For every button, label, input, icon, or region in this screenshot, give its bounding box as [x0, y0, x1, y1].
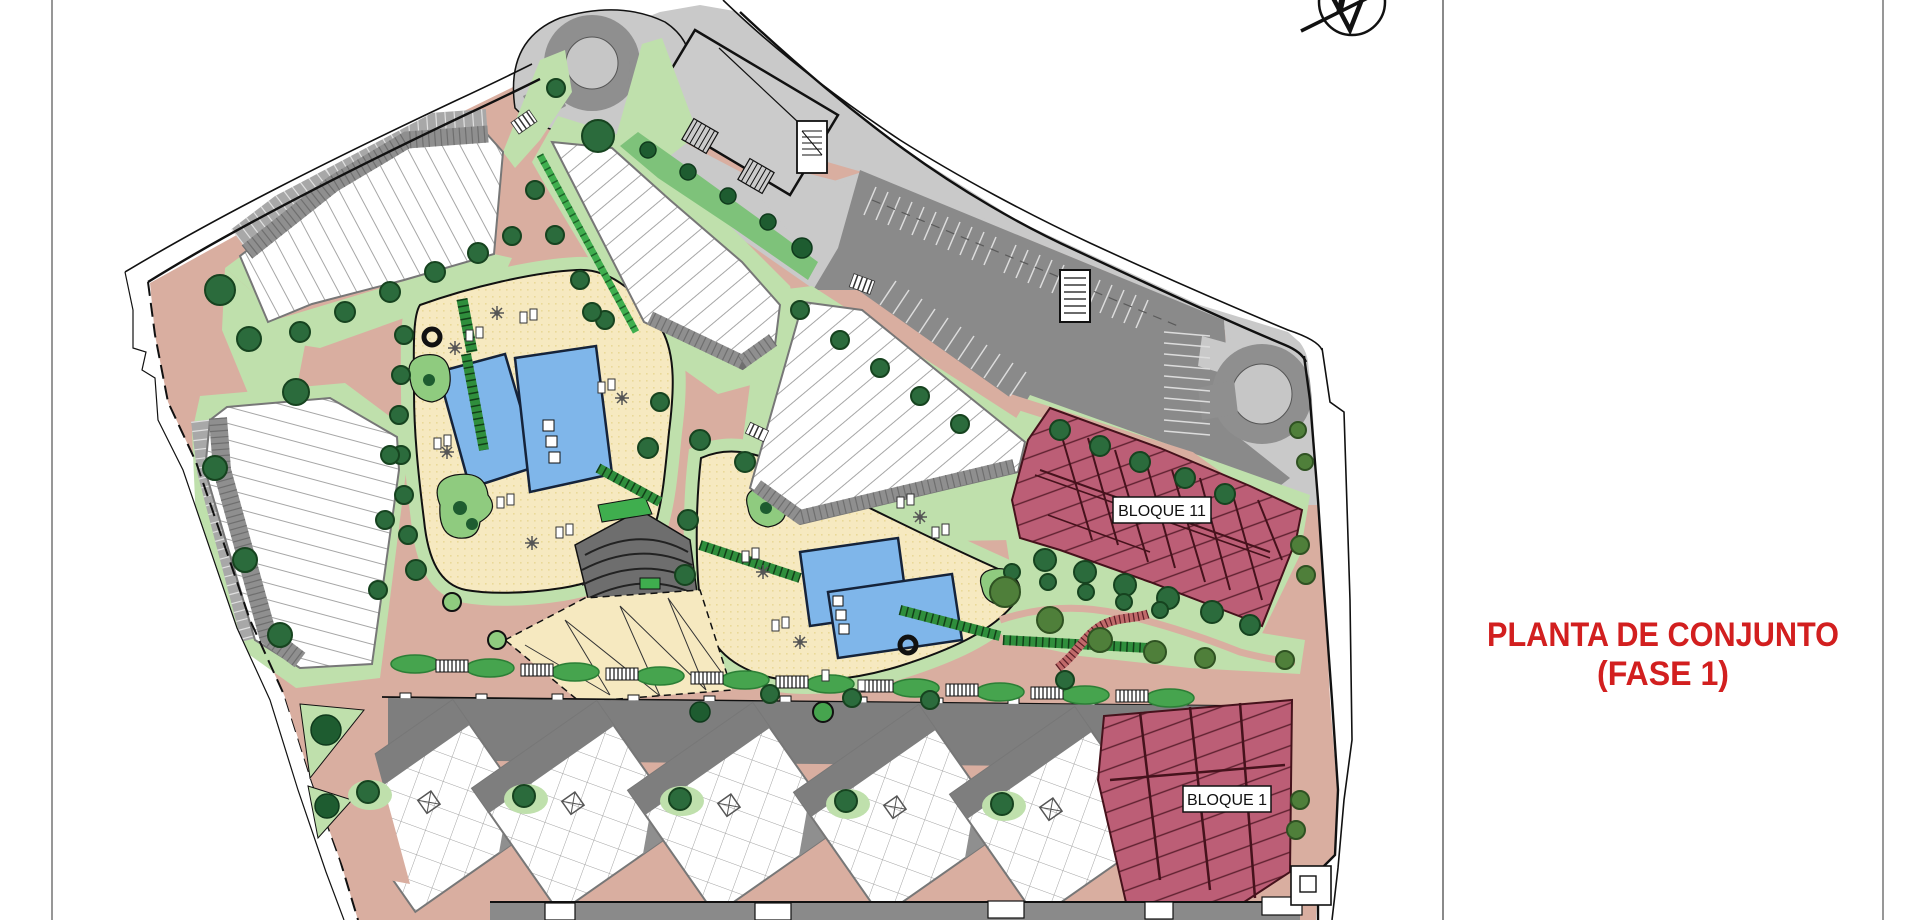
svg-text:PLANTA DE CONJUNTO: PLANTA DE CONJUNTO: [1487, 616, 1839, 654]
svg-text:(FASE 1): (FASE 1): [1597, 655, 1729, 693]
svg-text:BLOQUE 1: BLOQUE 1: [1187, 792, 1267, 809]
svg-text:BLOQUE 11: BLOQUE 11: [1118, 503, 1206, 520]
